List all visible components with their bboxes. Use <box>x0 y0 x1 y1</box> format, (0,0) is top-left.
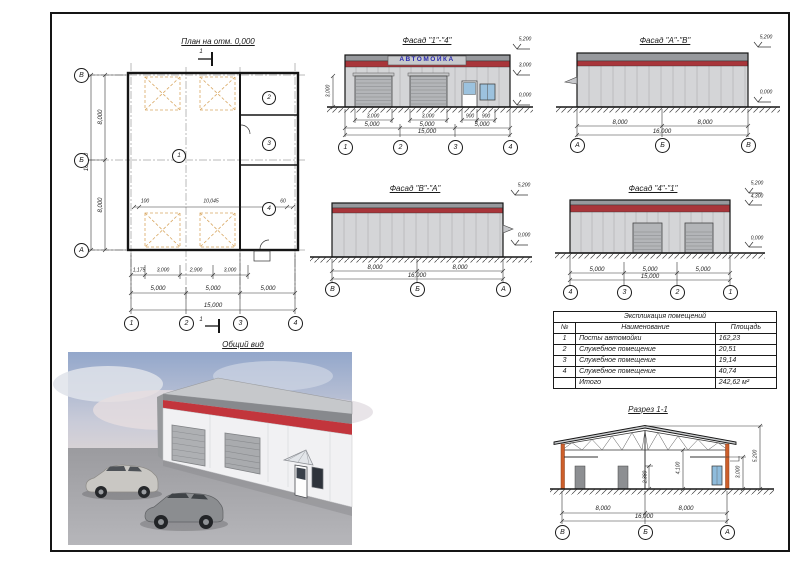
axis-bubble: 1 <box>124 316 139 331</box>
axis-bubble: 3 <box>233 316 248 331</box>
cell-num: 2 <box>554 345 576 356</box>
axis-bubble: 3 <box>617 285 632 300</box>
dim-label: 900 <box>482 115 490 120</box>
dim-label: 8,000 <box>595 506 610 512</box>
facade-a-b-drawing: Фасад "А"-"В" 8,000 8,000 16,000 5,200 0… <box>548 36 790 161</box>
dim-label: 8,000 <box>452 265 467 271</box>
dim-label: 5,000 <box>589 267 604 273</box>
elevation-label: 5,200 <box>760 36 773 41</box>
section-cut-mark: 1 <box>199 49 202 55</box>
room-number: 1 <box>172 149 186 163</box>
col-header-area: Площадь <box>715 323 776 334</box>
overview-render <box>68 352 352 545</box>
dim-label: 5,000 <box>419 122 434 128</box>
dim-label: 5,000 <box>474 122 489 128</box>
plan-title: План на отм. 0,000 <box>181 38 254 46</box>
cell-area: 20,51 <box>715 345 776 356</box>
facade-1-4-title: Фасад "1"-"4" <box>403 37 452 45</box>
section-cut-mark: 1 <box>199 317 202 323</box>
dim-label: 5,000 <box>205 286 220 292</box>
dim-label: 3,000 <box>157 269 170 274</box>
room-number: 4 <box>262 202 276 216</box>
table-row: 4 Служебное помещение 40,74 <box>554 367 777 378</box>
cell-area: 242,62 м² <box>715 378 776 389</box>
cell-name: Служебное помещение <box>576 367 716 378</box>
overview-3d: Общий вид <box>60 338 355 550</box>
axis-bubble: 2 <box>179 316 194 331</box>
dim-label: 5,000 <box>695 267 710 273</box>
dim-label: 8,000 <box>98 109 104 124</box>
dim-label: 16,000 <box>653 129 671 135</box>
axis-bubble: 1 <box>723 285 738 300</box>
axis-bubble: Б <box>74 153 89 168</box>
elevation-label: 3,000 <box>519 64 532 69</box>
axis-bubble: 2 <box>670 285 685 300</box>
cell-num: 4 <box>554 367 576 378</box>
axis-bubble: 2 <box>393 140 408 155</box>
axis-bubble: А <box>570 138 585 153</box>
dim-label: 15,000 <box>641 274 659 280</box>
table-row: 1 Посты автомойки 162,23 <box>554 334 777 345</box>
axis-bubble: В <box>741 138 756 153</box>
rooms-table-title: Экспликация помещений <box>554 312 777 323</box>
col-header-num: № <box>554 323 576 334</box>
floor-plan: План на отм. 0,000 1 1 1,175 3,000 2,900… <box>55 35 325 335</box>
facade-b-a-title: Фасад "В"-"А" <box>390 185 441 193</box>
cell-area: 40,74 <box>715 367 776 378</box>
table-row: 2 Служебное помещение 20,51 <box>554 345 777 356</box>
facade-b-a-drawing: Фасад "В"-"А" 8,000 8,000 16,000 5,200 0… <box>305 182 540 300</box>
axis-bubble: Б <box>638 525 653 540</box>
dim-label: 10,045 <box>203 200 218 205</box>
cell-num <box>554 378 576 389</box>
axis-bubble: 1 <box>338 140 353 155</box>
dim-label: 8,000 <box>98 197 104 212</box>
axis-bubble: Б <box>410 282 425 297</box>
cell-name: Служебное помещение <box>576 356 716 367</box>
dim-label: 900 <box>466 115 474 120</box>
axis-bubble: 4 <box>288 316 303 331</box>
floor-plan-linework <box>55 35 325 335</box>
axis-bubble: А <box>720 525 735 540</box>
cell-name: Посты автомойки <box>576 334 716 345</box>
overview-title: Общий вид <box>222 341 264 349</box>
facade-a-b-title: Фасад "А"-"В" <box>640 37 691 45</box>
rooms-table: Экспликация помещений № Наименование Пло… <box>553 311 777 389</box>
dim-label: 15,000 <box>418 129 436 135</box>
dim-label: 2,900 <box>190 269 203 274</box>
elevation-label: 5,200 <box>518 184 531 189</box>
cell-num: 3 <box>554 356 576 367</box>
facade-1-4-drawing: Фасад "1"-"4" АВТОМОЙКА 3,000 3,000 900 … <box>325 36 540 161</box>
cell-num: 1 <box>554 334 576 345</box>
section-1-1-linework <box>548 398 788 548</box>
axis-bubble: В <box>74 68 89 83</box>
dim-label: 5,200 <box>754 450 759 463</box>
table-row: 3 Служебное помещение 19,14 <box>554 356 777 367</box>
automoyka-sign: АВТОМОЙКА <box>399 57 454 64</box>
dim-label: 8,000 <box>697 120 712 126</box>
dim-label: 5,000 <box>150 286 165 292</box>
table-row: Итого 242,62 м² <box>554 378 777 389</box>
dim-label: 8,000 <box>678 506 693 512</box>
cell-name: Итого <box>576 378 716 389</box>
dim-label: 4,100 <box>677 462 682 475</box>
dim-label: 1,175 <box>133 269 146 274</box>
dim-label: 3,000 <box>224 269 237 274</box>
axis-bubble: 4 <box>563 285 578 300</box>
axis-bubble: В <box>555 525 570 540</box>
elevation-label: 4,300 <box>751 195 764 200</box>
axis-bubble: Б <box>655 138 670 153</box>
section-title: Разрез 1-1 <box>628 406 668 414</box>
dim-label: 3,000 <box>327 85 332 98</box>
dim-label: 8,000 <box>367 265 382 271</box>
dim-label: 60 <box>280 200 286 205</box>
axis-bubble: В <box>325 282 340 297</box>
axis-bubble: А <box>74 243 89 258</box>
dim-label: 5,000 <box>260 286 275 292</box>
dim-label: 16,000 <box>635 514 653 520</box>
elevation-label: 0,000 <box>519 94 532 99</box>
room-number: 2 <box>262 91 276 105</box>
cell-area: 162,23 <box>715 334 776 345</box>
drawing-sheet: План на отм. 0,000 1 1 1,175 3,000 2,900… <box>0 0 800 566</box>
section-1-1-drawing: Разрез 1-1 2,380 4,100 3,000 5,200 8,000… <box>548 398 788 548</box>
facade-4-1-title: Фасад "4"-"1" <box>629 185 678 193</box>
elevation-label: 0,000 <box>760 91 773 96</box>
elevation-label: 0,000 <box>518 234 531 239</box>
dim-label: 5,000 <box>364 122 379 128</box>
elevation-label: 5,200 <box>751 182 764 187</box>
axis-bubble: А <box>496 282 511 297</box>
dim-label: 100 <box>141 200 149 205</box>
room-number: 3 <box>262 137 276 151</box>
dim-label: 15,000 <box>204 303 222 309</box>
dim-label: 8,000 <box>612 120 627 126</box>
dim-label: 3,000 <box>422 115 435 120</box>
elevation-label: 0,000 <box>751 237 764 242</box>
facade-4-1-drawing: Фасад "4"-"1" 5,000 5,000 5,000 15,000 5… <box>553 182 793 300</box>
cell-area: 19,14 <box>715 356 776 367</box>
dim-label: 3,000 <box>737 466 742 479</box>
dim-label: 16,000 <box>408 273 426 279</box>
cell-name: Служебное помещение <box>576 345 716 356</box>
axis-bubble: 4 <box>503 140 518 155</box>
dim-label: 3,000 <box>367 115 380 120</box>
axis-bubble: 3 <box>448 140 463 155</box>
elevation-label: 5,200 <box>519 38 532 43</box>
dim-label: 2,380 <box>644 471 649 484</box>
dim-label: 5,000 <box>642 267 657 273</box>
col-header-name: Наименование <box>576 323 716 334</box>
